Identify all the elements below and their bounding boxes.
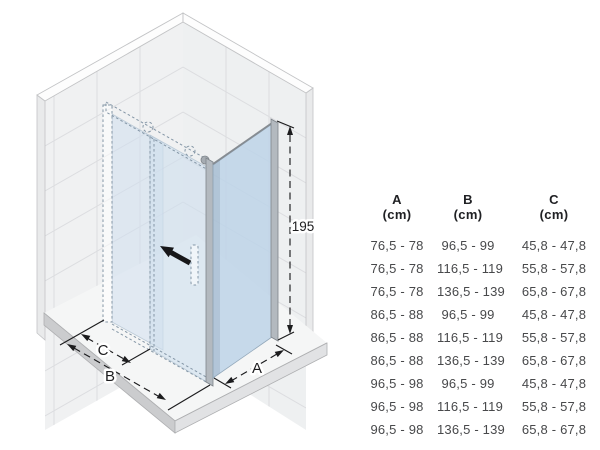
table-cell: 65,8 - 67,8 [499,284,600,299]
table-cell: 55,8 - 57,8 [499,261,600,276]
table-row: 76,5 - 78136,5 - 13965,8 - 67,8 [357,280,600,303]
table-cell: 76,5 - 78 [357,238,437,253]
table-row: 76,5 - 78116,5 - 11955,8 - 57,8 [357,257,600,280]
shower-enclosure-diagram: 195 A B C [0,0,360,450]
dimensions-table: A (cm) B (cm) C (cm) 76,5 - 7896,5 - 994… [357,192,600,441]
table-cell: 96,5 - 98 [357,422,437,437]
side-panel-glass [213,124,272,378]
table-row: 96,5 - 98136,5 - 13965,8 - 67,8 [357,418,600,441]
column-header-b: B (cm) [437,192,499,222]
table-cell: 45,8 - 47,8 [499,238,600,253]
table-cell: 76,5 - 78 [357,261,437,276]
column-header-a: A (cm) [357,192,437,222]
table-cell: 86,5 - 88 [357,330,437,345]
table-cell: 65,8 - 67,8 [499,422,600,437]
table-cell: 96,5 - 98 [357,399,437,414]
dimensions-table-body: 76,5 - 7896,5 - 9945,8 - 47,876,5 - 7811… [357,234,600,441]
table-cell: 96,5 - 99 [437,376,499,391]
table-cell: 96,5 - 99 [437,238,499,253]
table-cell: 116,5 - 119 [437,261,499,276]
door-handle-dashed [191,245,198,285]
table-cell: 136,5 - 139 [437,422,499,437]
table-cell: 86,5 - 88 [357,307,437,322]
table-row: 96,5 - 98116,5 - 11955,8 - 57,8 [357,395,600,418]
column-unit: (cm) [437,207,499,222]
table-cell: 55,8 - 57,8 [499,330,600,345]
table-cell: 45,8 - 47,8 [499,376,600,391]
dimension-height-label: 195 [292,219,315,234]
table-row: 86,5 - 88136,5 - 13965,8 - 67,8 [357,349,600,372]
left-wall-outer-edge [37,95,45,340]
dimensions-table-header: A (cm) B (cm) C (cm) [357,192,600,222]
table-cell: 136,5 - 139 [437,353,499,368]
door-wall-profile-dashed [103,105,112,322]
table-row: 76,5 - 7896,5 - 9945,8 - 47,8 [357,234,600,257]
table-cell: 55,8 - 57,8 [499,399,600,414]
column-unit: (cm) [499,207,600,222]
corner-post-profile [206,158,213,386]
dimension-a-label: A [252,360,262,377]
table-cell: 116,5 - 119 [437,399,499,414]
side-panel-glass-shade [213,160,220,378]
dimension-b-label: B [105,368,115,385]
table-cell: 76,5 - 78 [357,284,437,299]
table-cell: 96,5 - 98 [357,376,437,391]
table-cell: 45,8 - 47,8 [499,307,600,322]
table-cell: 136,5 - 139 [437,284,499,299]
side-panel-wall-profile [271,119,278,341]
column-unit: (cm) [357,207,437,222]
table-cell: 86,5 - 88 [357,353,437,368]
dimension-c-label: C [98,342,109,359]
table-cell: 116,5 - 119 [437,330,499,345]
table-row: 86,5 - 88116,5 - 11955,8 - 57,8 [357,326,600,349]
column-letter: A [357,192,437,207]
table-cell: 96,5 - 99 [437,307,499,322]
column-letter: C [499,192,600,207]
column-header-c: C (cm) [499,192,600,222]
table-cell: 65,8 - 67,8 [499,353,600,368]
table-row: 96,5 - 9896,5 - 9945,8 - 47,8 [357,372,600,395]
column-letter: B [437,192,499,207]
table-row: 86,5 - 8896,5 - 9945,8 - 47,8 [357,303,600,326]
